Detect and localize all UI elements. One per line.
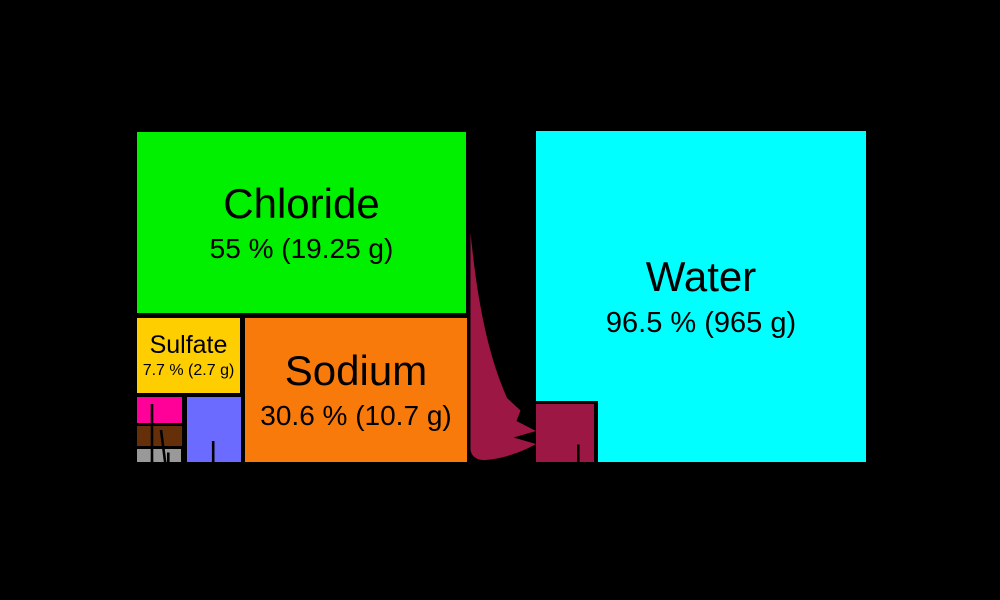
small-box-magenta xyxy=(137,397,182,423)
sodium-value: 30.6 % (10.7 g) xyxy=(260,399,451,433)
sulfate-value: 7.7 % (2.7 g) xyxy=(143,361,235,380)
water-value: 96.5 % (965 g) xyxy=(606,306,796,341)
sulfate-label: Sulfate xyxy=(150,331,228,359)
chloride-value: 55 % (19.25 g) xyxy=(210,232,394,266)
seawater-composition-diagram: Chloride 55 % (19.25 g) Sulfate 7.7 % (2… xyxy=(0,0,1000,600)
small-box-gray xyxy=(137,449,181,462)
salts-square xyxy=(536,404,594,462)
small-box-blue xyxy=(187,397,241,462)
salts-square-frame xyxy=(536,401,598,462)
sulfate-box: Sulfate 7.7 % (2.7 g) xyxy=(137,318,240,393)
sodium-box: Sodium 30.6 % (10.7 g) xyxy=(245,318,467,462)
water-label: Water xyxy=(646,253,756,300)
chloride-box: Chloride 55 % (19.25 g) xyxy=(137,132,466,313)
salts-arrow xyxy=(471,232,537,460)
chloride-label: Chloride xyxy=(223,180,379,227)
salts-treemap: Chloride 55 % (19.25 g) Sulfate 7.7 % (2… xyxy=(134,129,470,465)
sodium-label: Sodium xyxy=(285,347,427,394)
small-box-brown xyxy=(137,426,182,446)
